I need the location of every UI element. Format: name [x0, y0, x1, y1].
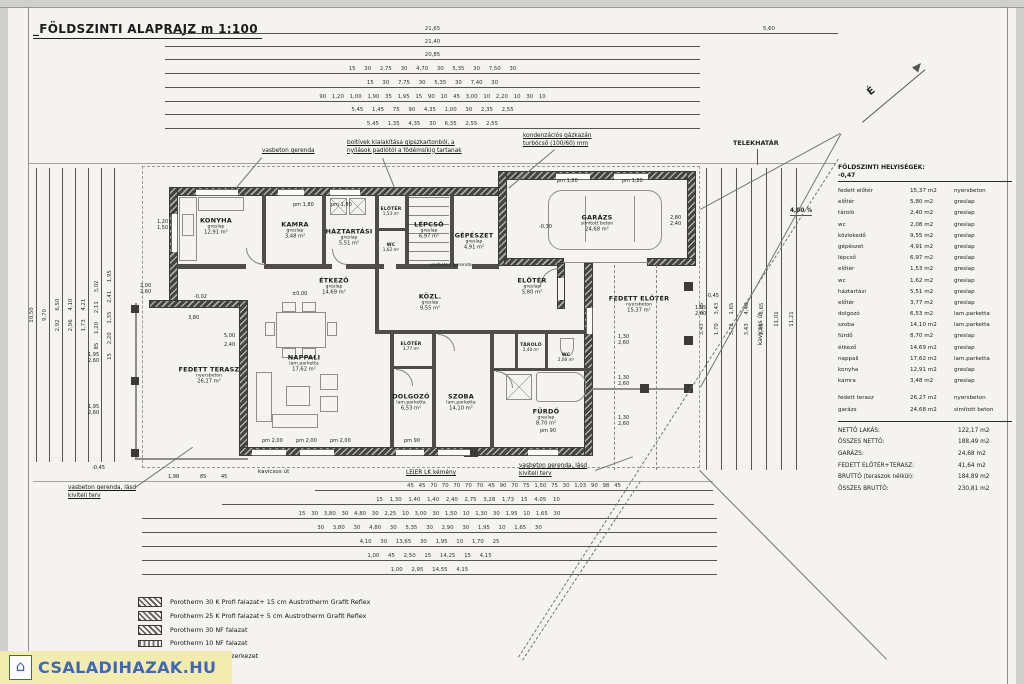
column — [131, 377, 139, 385]
garage-door — [563, 262, 648, 263]
dim-chain-left: 2,96 4,10 — [75, 168, 77, 462]
armchair — [320, 374, 338, 390]
sofa — [256, 372, 272, 422]
dim-chain-right: 3,43 1,35 — [706, 168, 708, 470]
schedule-row: lépcső6,97 m2greslap — [838, 253, 1012, 264]
wall — [688, 172, 695, 265]
dotted-swatch-icon — [138, 640, 162, 647]
column — [640, 384, 649, 393]
note-vasbeton-bl: vasbeton gerenda, lásdkiviteli terv — [68, 485, 136, 500]
extension-line — [33, 481, 713, 482]
parapet-label: pm 1,80 — [293, 202, 314, 208]
dim-chain-bottom: 15 30 3,80 30 4,80 30 2,25 10 3,00 30 1,… — [142, 518, 717, 520]
room-label-fedett-terasz: FEDETT TERASZnyersbeton26,27 m² — [179, 367, 240, 386]
schedule-row: előtér3,77 m2greslap — [838, 298, 1012, 309]
wall — [375, 228, 405, 231]
legend-item: Porotherm 30 NF falazat — [138, 625, 370, 635]
schedule-row: gépészet4,91 m2greslap — [838, 242, 1012, 253]
room-label-eloter-hall: ELŐTÉR3,77 m² — [401, 342, 422, 352]
room-label-fedett-eloter: FEDETT ELŐTÉRnyersbeton15,37 m² — [609, 296, 670, 315]
schedule-row: konyha12,91 m2greslap — [838, 365, 1012, 376]
parapet-label: pm 1,80 — [331, 202, 352, 208]
dim-pair: 1,201,50 — [157, 219, 168, 232]
car-rear-line — [634, 196, 635, 242]
window — [528, 449, 558, 456]
room-label-dolgozo: DOLGOZÓlam.parketta6,53 m² — [392, 394, 430, 413]
hatch-swatch-icon — [138, 625, 162, 635]
level-mark: -0,45 — [706, 293, 719, 299]
room-label-nappali: NAPPALIlam.parketta17,62 m² — [288, 355, 320, 374]
note-vasbeton-gerenda: vasbeton gerenda — [262, 148, 315, 156]
chair — [282, 302, 296, 312]
window — [252, 449, 286, 456]
window — [586, 308, 593, 334]
window — [330, 189, 360, 196]
dim-chain-left: 15 2,20 1,35 2,41 1,95 — [114, 168, 116, 462]
wall — [585, 264, 592, 455]
schedule-total-row: NETTÓ LAKÁS:122,17 m2 — [838, 426, 1012, 438]
room-label-gepeszet: GÉPÉSZETgreslap4,91 m² — [455, 233, 494, 252]
dim-chain-left: 85 1,20 2,11 3,02 — [101, 168, 103, 462]
note-gazkazan: kondenzációs gázkazánturbócső (100/60) m… — [523, 133, 591, 148]
armchair — [320, 396, 338, 412]
terrace-edge — [135, 458, 248, 460]
room-label-eloter: ELŐTÉRgreslap5,80 m² — [517, 278, 546, 297]
dim-chain-left: 1,73 4,21 — [88, 168, 90, 462]
schedule-total-row: ÖSSZES BRUTTÓ:230,81 m2 — [838, 484, 1012, 496]
schedule-rows: fedett előtér15,37 m2nyersbetonelőtér5,8… — [838, 186, 1012, 387]
dim-pair: 2,802,40 — [670, 215, 681, 228]
note-kemeny: LEIER LK kémény — [406, 470, 456, 478]
dim-chain-right: 3,43 4,48 — [751, 168, 753, 470]
legend-item: Porotherm 30 K Profi falazat+ 15 cm Aust… — [138, 597, 370, 607]
wall — [490, 334, 494, 448]
room-label-szoba: SZOBAlam.parketta14,10 m² — [446, 394, 475, 413]
wall — [150, 301, 247, 307]
shower — [506, 374, 532, 400]
wall — [450, 195, 454, 264]
watermark-text: CSALADIHAZAK.HU — [38, 658, 216, 677]
wall — [499, 172, 506, 265]
schedule-row: nappali17,62 m2lam.parketta — [838, 354, 1012, 365]
inner-dim: 1,98 — [168, 474, 179, 480]
dim-pair: 1,952,60 — [695, 305, 706, 318]
parapet-label: pm 1,80 — [557, 178, 578, 184]
inner-dim: 2,40 — [224, 342, 235, 348]
level-mark: -0,02 — [194, 294, 207, 300]
legend-item: Porotherm 25 K Profi falazat+ 5 cm Austr… — [138, 611, 370, 621]
room-label-lepcso: LÉPCSŐgreslap6,97 m² — [414, 222, 444, 241]
schedule-row: garázs24,68 m2simított beton — [838, 405, 1012, 416]
schedule-row: dolgozó6,53 m2lam.parketta — [838, 309, 1012, 320]
dim-chain-right: 1,70 3,43 — [721, 168, 723, 470]
room-label-wc: WC2,08 m² — [558, 353, 574, 363]
parapet-label: pm 2,00 — [296, 438, 317, 444]
dim-pair: 1,302,60 — [618, 334, 629, 347]
label-kavicsos-ut: kavicsos út — [258, 469, 289, 475]
dim-chain-left: 10,50 — [36, 168, 38, 462]
parapet-label: pm 90 — [404, 438, 420, 444]
wall — [505, 259, 563, 265]
wall — [494, 368, 592, 371]
schedule-total-row: BRUTTÓ (teraszok nélkül):184,89 m2 — [838, 472, 1012, 484]
schedule-row: előtér1,53 m2greslap — [838, 264, 1012, 275]
driveway-edge-dashed — [656, 265, 657, 470]
dim-chain-bottom: 1,00 2,95 14,55 4,15 — [142, 574, 717, 576]
scan-edge-top — [0, 7, 1024, 8]
legend-item: Porotherm 10 NF falazat — [138, 639, 370, 647]
parapet-label: pm 1,80 — [622, 178, 643, 184]
schedule-row: wc2,08 m2greslap — [838, 220, 1012, 231]
room-label-wc-small: WC1,62 m² — [383, 243, 399, 253]
window — [196, 189, 238, 196]
level-mark: -0,30 — [539, 224, 552, 230]
parapet-label: pm 2,00 — [330, 438, 351, 444]
dim-chain-top: 5,45 1,45 75 90 4,35 1,00 30 2,35 2,55 — [165, 114, 700, 116]
schedule-row: háztartási5,51 m2greslap — [838, 287, 1012, 298]
dim-chain-bottom: 30 3,80 30 4,80 30 5,35 30 2,90 30 1,95 … — [142, 532, 717, 534]
dim-pair: 1,302,60 — [618, 415, 629, 428]
label-telekhatar: TELEKHATÁR — [733, 139, 779, 147]
column — [684, 336, 693, 345]
wall — [240, 301, 247, 455]
window — [396, 449, 424, 456]
dim-chain-top: 5,60 — [700, 33, 838, 35]
schedule-row: kamra3,48 m2greslap — [838, 376, 1012, 387]
schedule-header: FÖLDSZINTI HELYISÉGEK: — [838, 164, 1012, 171]
dim-pair: 1,952,60 — [88, 404, 99, 417]
room-label-garazs: GARÁZSsimított beton24,68 m² — [581, 215, 613, 234]
room-label-kamra: KAMRAgreslap3,48 m² — [281, 222, 309, 241]
parapet-label: pm 2,00 — [262, 438, 283, 444]
dim-chain-left: 9,70 — [49, 168, 51, 462]
dim-pair: 2,002,60 — [140, 283, 151, 296]
level-mark: -0,45 — [92, 465, 105, 471]
inner-dim: 5,00 — [224, 333, 235, 339]
window — [171, 214, 178, 252]
schedule-total-row: FEDETT ELŐTÉR+TERASZ:41,64 m2 — [838, 461, 1012, 473]
sofa — [272, 414, 318, 428]
dim-chain-left: 2,92 6,50 — [62, 168, 64, 462]
wall — [375, 330, 592, 334]
chair — [265, 322, 275, 336]
schedule-total-row: ÖSSZES NETTÓ:188,49 m2 — [838, 437, 1012, 449]
kitchen-counter — [198, 197, 244, 211]
window — [300, 449, 334, 456]
column — [131, 449, 139, 457]
room-label-furdo: FÜRDŐgreslap8,70 m² — [533, 409, 560, 428]
door-opening — [384, 263, 396, 270]
dim-chain-bottom: 4,10 30 13,65 30 1,95 10 1,70 25 — [142, 546, 717, 548]
wall — [545, 334, 548, 368]
chair — [327, 322, 337, 336]
schedule-row: előtér5,80 m2greslap — [838, 197, 1012, 208]
dim-chain-top: 21,40 — [165, 46, 700, 48]
window — [438, 449, 470, 456]
parapet-label: pm 90 — [540, 428, 556, 434]
dining-table — [276, 312, 326, 348]
coffee-table — [286, 386, 310, 406]
house-logo-icon: ⌂ — [9, 655, 32, 680]
telekhatar-tick — [757, 149, 758, 165]
watermark-bar: ⌂ CSALADIHAZAK.HU — [0, 651, 232, 684]
room-label-eloter-small: ELŐTÉR1,53 m² — [381, 207, 402, 217]
inner-dim: 85 — [200, 474, 206, 480]
dim-chain-right: 1,45 3,65 — [766, 168, 768, 470]
inner-dim: 3,80 — [188, 315, 199, 321]
level-mark: ±0,00 — [292, 291, 307, 297]
dim-pair: 1,302,60 — [618, 375, 629, 388]
dim-chain-top: 20,85 — [165, 59, 700, 61]
wall — [390, 334, 394, 448]
dim-chain-top: 5,45 1,35 4,35 30 6,35 2,55 2,55 — [165, 128, 700, 130]
dim-chain-right: 11,01 — [781, 168, 783, 470]
floor-plan-sheet: _FÖLDSZINTI ALAPRAJZ m 1:100 21,65 5,60 … — [0, 0, 1024, 684]
schedule-row: wc1,62 m2greslap — [838, 276, 1012, 287]
dim-chain-top: 90 1,20 1,00 1,90 35 1,95 15 90 10 45 3,… — [165, 101, 700, 103]
label-kavicsos-ut-v: kavicsos út — [758, 313, 764, 345]
bathtub — [536, 372, 586, 402]
chair — [302, 302, 316, 312]
dim-chain-top: 21,65 — [165, 33, 700, 35]
wall — [505, 172, 695, 179]
hatch-swatch-icon — [138, 597, 162, 607]
extension-line — [28, 163, 836, 164]
schedule-rows-outdoor: fedett terasz26,27 m2nyersbetongarázs24,… — [838, 393, 1012, 415]
room-schedule: FÖLDSZINTI HELYISÉGEK: -0,47 fedett előt… — [838, 164, 1012, 495]
room-label-haztartasi: HÁZTARTÁSIgreslap5,51 m² — [326, 229, 373, 248]
schedule-row: étkező14,69 m2greslap — [838, 343, 1012, 354]
schedule-row: fedett előtér15,37 m2nyersbeton — [838, 186, 1012, 197]
room-label-kozl: KÖZL.greslap9,55 m² — [419, 294, 442, 313]
schedule-level: -0,47 — [838, 171, 1012, 182]
schedule-row: közlekedő9,55 m2greslap — [838, 231, 1012, 242]
column — [131, 305, 139, 313]
driveway-edge-dashed — [614, 265, 615, 470]
kitchen-sink — [182, 214, 194, 236]
room-label-etkezo: ÉTKEZŐgreslap14,69 m² — [319, 278, 349, 297]
schedule-separator — [838, 421, 1012, 422]
wall — [432, 334, 436, 448]
note-vasbeton-inner: vasbeton gerenda — [430, 263, 472, 268]
window — [278, 189, 304, 196]
note-vasbeton-br: vasbeton gerenda, lásdkiviteli terv — [519, 463, 587, 478]
dim-chain-bottom: 1,00 45 2,50 15 14,25 15 4,15 — [142, 560, 717, 562]
schedule-totals: NETTÓ LAKÁS:122,17 m2ÖSSZES NETTÓ:188,49… — [838, 426, 1012, 496]
room-label-konyha: KONYHAgreslap12,91 m² — [200, 218, 232, 237]
schedule-row: szoba14,10 m2lam.parketta — [838, 320, 1012, 331]
note-boltivek: boltívek kialakítása gipszkartonból, any… — [347, 140, 462, 155]
inner-dim: 45 — [221, 474, 227, 480]
dim-chain-bottom: 15 1,30 1,40 1,40 2,40 2,75 3,28 1,73 15… — [222, 504, 714, 506]
dim-pair: 1,952,60 — [88, 352, 99, 365]
schedule-total-row: GARÁZS:24,68 m2 — [838, 449, 1012, 461]
room-label-tarolo: TÁROLÓ2,40 m² — [520, 343, 542, 353]
wall — [515, 334, 518, 368]
wall — [375, 269, 379, 330]
schedule-row: fürdő8,70 m2greslap — [838, 331, 1012, 342]
hatch-swatch-icon — [138, 611, 162, 621]
schedule-row: fedett terasz26,27 m2nyersbeton — [838, 393, 1012, 404]
dim-chain-top: 15 30 7,75 30 5,35 30 7,40 30 — [165, 87, 700, 89]
schedule-row: tároló2,40 m2greslap — [838, 208, 1012, 219]
dim-chain-top: 15 30 2,75 30 4,70 30 5,35 30 7,50 30 — [165, 73, 700, 75]
column — [684, 282, 693, 291]
dim-chain-bottom: 45 45 70 70 70 70 70 45 90 70 75 1,50 75… — [315, 490, 713, 492]
